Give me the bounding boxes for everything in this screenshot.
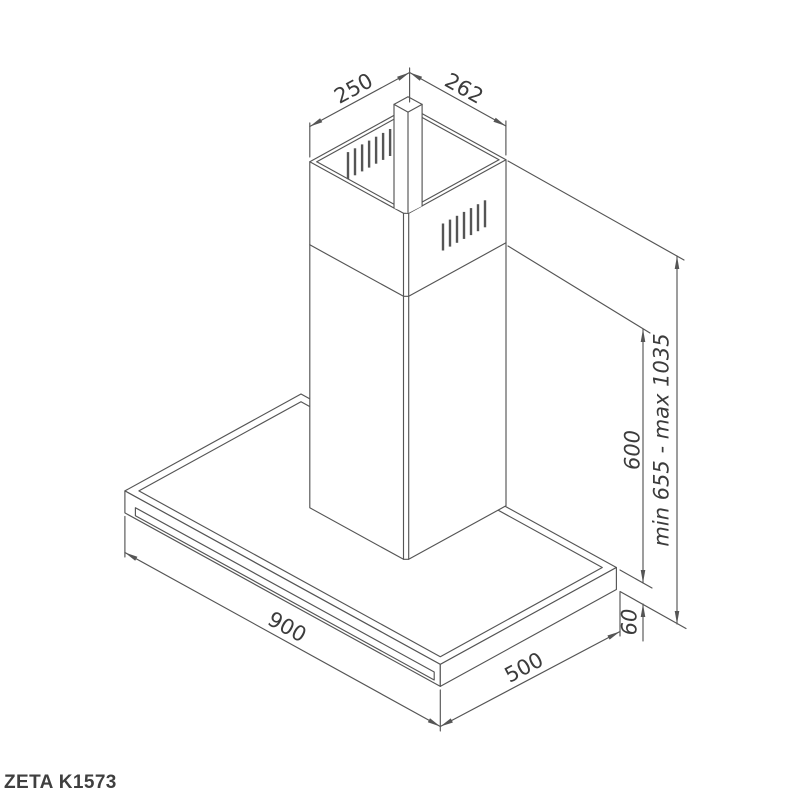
dimension-arrow — [410, 73, 423, 81]
dimension-arrow — [440, 718, 453, 726]
isometric-hood-drawing: 250 262 900 500 600 min 655 - max 1035 6… — [0, 0, 800, 800]
dim-body-height-label: 60 — [618, 609, 642, 636]
dimension-arrow — [675, 256, 680, 269]
dimension-arrow — [397, 73, 410, 81]
dim-overall-height-range-label: min 655 - max 1035 — [650, 333, 674, 546]
dimension-arrow — [641, 570, 646, 583]
drawing-geometry — [125, 68, 686, 731]
dimension-arrow — [310, 118, 323, 126]
extension-line — [508, 246, 650, 333]
extension-line — [508, 161, 684, 260]
dimension-arrow — [641, 329, 646, 342]
dim-body-depth-label: 500 — [501, 648, 548, 688]
model-label: ZETA K1573 — [4, 772, 117, 794]
dimension-arrow — [493, 118, 506, 126]
dimension-arrow — [125, 553, 137, 561]
dim-body-width-label: 900 — [264, 607, 311, 647]
technical-drawing: 250 262 900 500 600 min 655 - max 1035 6… — [0, 0, 800, 800]
dimension-arrow — [428, 718, 441, 726]
dim-lower-chimney-height-label: 600 — [621, 430, 645, 470]
extension-line — [620, 570, 652, 588]
